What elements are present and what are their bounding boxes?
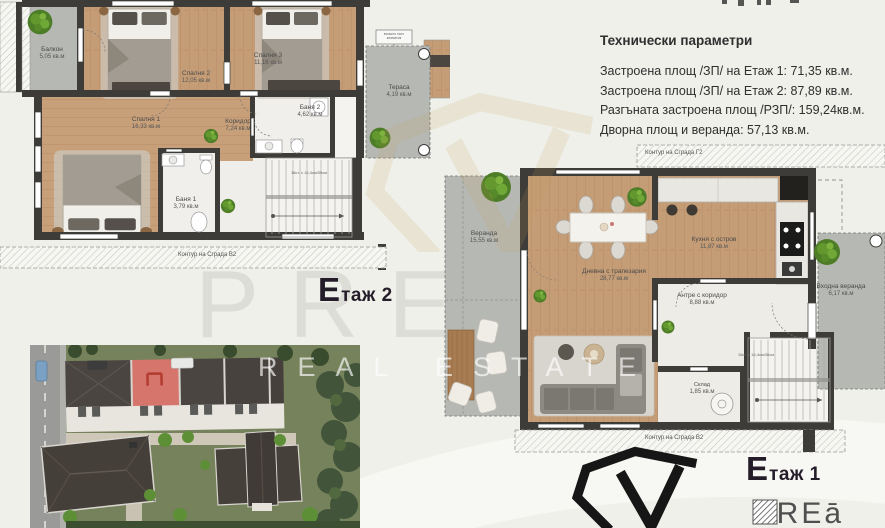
room-area: 11,87 кв.м bbox=[692, 244, 737, 252]
agency-gem-logo bbox=[570, 446, 702, 528]
car bbox=[87, 360, 107, 369]
tech-line: Застроена площ /ЗП/ на Етаж 2: 87,89 кв.… bbox=[600, 82, 865, 102]
tech-line: Дворна площ и веранда: 57,13 кв.м. bbox=[600, 121, 865, 141]
room-name: Баня 2 bbox=[298, 104, 323, 112]
car bbox=[36, 361, 47, 381]
contour-label-g2: Контур на Сграда Г2 bbox=[645, 150, 703, 156]
floor-title-big: Е bbox=[746, 450, 768, 488]
room-area: 15,55 кв.м bbox=[470, 238, 498, 246]
room-name: Спалня 3 bbox=[254, 52, 282, 60]
room-area: 4,19 кв.м bbox=[387, 92, 412, 100]
room-label-spalnya3: Спалня 3 11,16 кв.м bbox=[254, 52, 282, 68]
room-name: Баня 1 bbox=[174, 196, 199, 204]
big-house-roof bbox=[41, 435, 156, 513]
floor2-title: Етаж 2 bbox=[318, 271, 393, 309]
stairs-note-floor1: 16ст. х 16,4см/30см bbox=[738, 352, 774, 357]
tech-line: Разгъната застроена площ /РЗП/: 159,24кв… bbox=[600, 101, 865, 121]
ac-unit-note: външно тяло климатик bbox=[377, 32, 411, 40]
room-name: Входна веранда bbox=[817, 283, 866, 291]
room-name: Тераса bbox=[387, 84, 412, 92]
room-name: Кухня с остров bbox=[692, 236, 737, 244]
room-area: 12,05 кв.м bbox=[182, 78, 210, 86]
room-name: Балкон bbox=[40, 46, 65, 54]
car bbox=[171, 358, 193, 368]
room-name: Дневна с трапезария bbox=[582, 268, 646, 276]
room-area: 4,62 кв.м bbox=[298, 112, 323, 120]
room-name: Антре с коридор bbox=[677, 292, 727, 300]
cropped-logo-fragment bbox=[790, 0, 799, 3]
technical-parameters-title: Технически параметри bbox=[600, 33, 865, 48]
room-label-koridor: Коридор 7,24 кв.м bbox=[225, 118, 251, 134]
room-area: 6,17 кв.м bbox=[817, 291, 866, 299]
cropped-logo-fragment bbox=[766, 0, 771, 5]
room-label-balkon: Балкон 5,05 кв.м bbox=[40, 46, 65, 62]
listing-image: PREMIER bbox=[0, 0, 885, 528]
room-area: 1,85 кв.м bbox=[690, 389, 715, 397]
room-label-banya2: Баня 2 4,62 кв.м bbox=[298, 104, 323, 120]
room-label-dnevna: Дневна с трапезария 28,77 кв.м bbox=[582, 268, 646, 284]
realestate-watermark: REAL ESTATE bbox=[258, 352, 656, 383]
tech-line: Застроена площ /ЗП/ на Етаж 1: 71,35 кв.… bbox=[600, 62, 865, 82]
floor-title-big: Е bbox=[318, 271, 340, 309]
cropped-logo-fragment bbox=[722, 0, 727, 4]
room-label-spalnya1: Спалня 1 16,33 кв.м bbox=[132, 116, 160, 132]
room-area: 8,88 кв.м bbox=[677, 300, 727, 308]
cropped-logo-fragment bbox=[757, 0, 761, 5]
crea-logo-icon bbox=[752, 499, 778, 525]
room-label-kuhnya: Кухня с остров 11,87 кв.м bbox=[692, 236, 737, 252]
room-name: Спалня 1 bbox=[132, 116, 160, 124]
room-label-banya1: Баня 1 3,79 кв.м bbox=[174, 196, 199, 212]
room-area: 28,77 кв.м bbox=[582, 276, 646, 284]
room-area: 5,05 кв.м bbox=[40, 54, 65, 62]
stairs-note-floor2: 16ст. х 16,4см/30см bbox=[291, 170, 327, 175]
contour-label-floor2: Контур на Сграда В2 bbox=[178, 252, 236, 258]
room-label-vhodna-veranda: Входна веранда 6,17 кв.м bbox=[817, 283, 866, 299]
room-label-sklad: Склад 1,85 кв.м bbox=[690, 382, 715, 397]
cropped-logo-fragment bbox=[738, 0, 744, 6]
floor1-title: Етаж 1 bbox=[746, 450, 821, 488]
room-name: Коридор bbox=[225, 118, 251, 126]
room-label-antre: Антре с коридор 8,88 кв.м bbox=[677, 292, 727, 308]
room-area: 7,24 кв.м bbox=[225, 126, 251, 134]
room-area: 3,79 кв.м bbox=[174, 204, 199, 212]
room-label-spalnya2: Спалня 2 12,05 кв.м bbox=[182, 70, 210, 86]
gem-watermark bbox=[362, 92, 602, 252]
contour-label-v2: Контур на Сграда В2 bbox=[645, 435, 703, 441]
room-label-terasa: Тераса 4,19 кв.м bbox=[387, 84, 412, 100]
entrance-details bbox=[870, 235, 882, 247]
row-houses bbox=[65, 356, 284, 432]
room-name: Склад bbox=[690, 382, 715, 389]
crea-logo: CREā bbox=[752, 499, 844, 528]
room-area: 11,16 кв.м bbox=[254, 60, 282, 68]
room-label-veranda: Веранда 15,55 кв.м bbox=[470, 230, 498, 246]
technical-parameters: Технически параметри Застроена площ /ЗП/… bbox=[600, 33, 865, 140]
room-area: 16,33 кв.м bbox=[132, 124, 160, 132]
floor-title-small: таж 1 bbox=[769, 464, 821, 486]
floor-title-small: таж 2 bbox=[341, 285, 393, 307]
room-name: Спалня 2 bbox=[182, 70, 210, 78]
room-name: Веранда bbox=[470, 230, 498, 238]
